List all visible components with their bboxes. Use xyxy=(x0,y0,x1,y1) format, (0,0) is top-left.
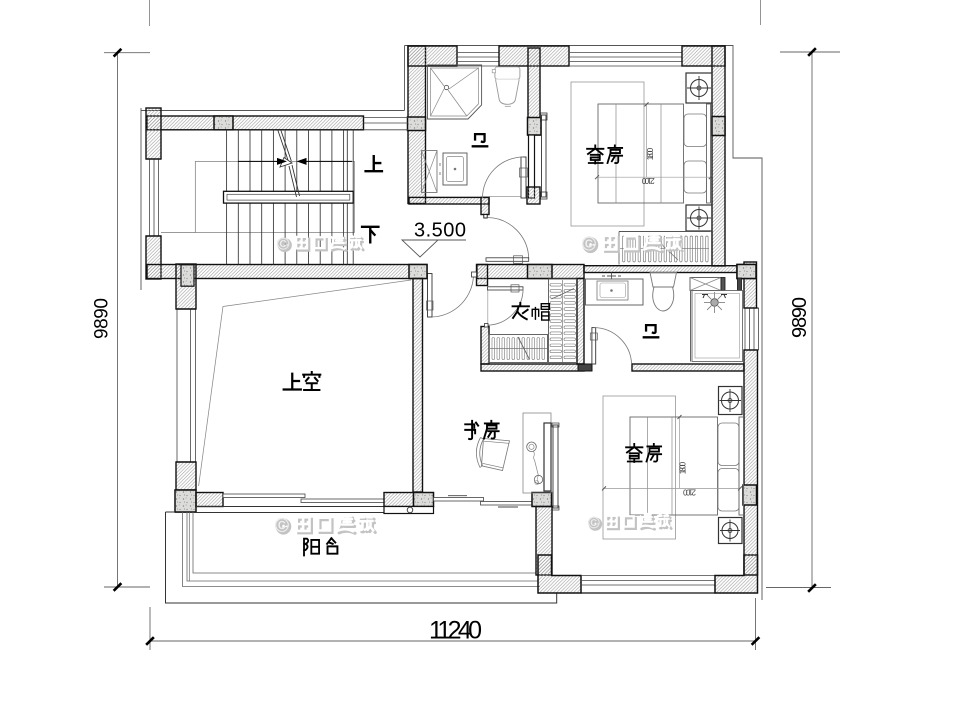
svg-text:1800: 1800 xyxy=(646,147,655,160)
svg-text:2100: 2100 xyxy=(682,487,696,496)
svg-text:1800: 1800 xyxy=(678,461,687,474)
svg-text:9890: 9890 xyxy=(92,298,113,339)
svg-text:3.500: 3.500 xyxy=(414,220,466,242)
svg-text:11240: 11240 xyxy=(429,617,482,645)
svg-text:©: © xyxy=(582,235,596,256)
svg-text:©: © xyxy=(277,235,290,254)
svg-text:9890: 9890 xyxy=(789,297,811,338)
svg-text:2100: 2100 xyxy=(641,176,655,185)
svg-text:©: © xyxy=(275,516,289,537)
svg-text:©: © xyxy=(588,515,600,532)
